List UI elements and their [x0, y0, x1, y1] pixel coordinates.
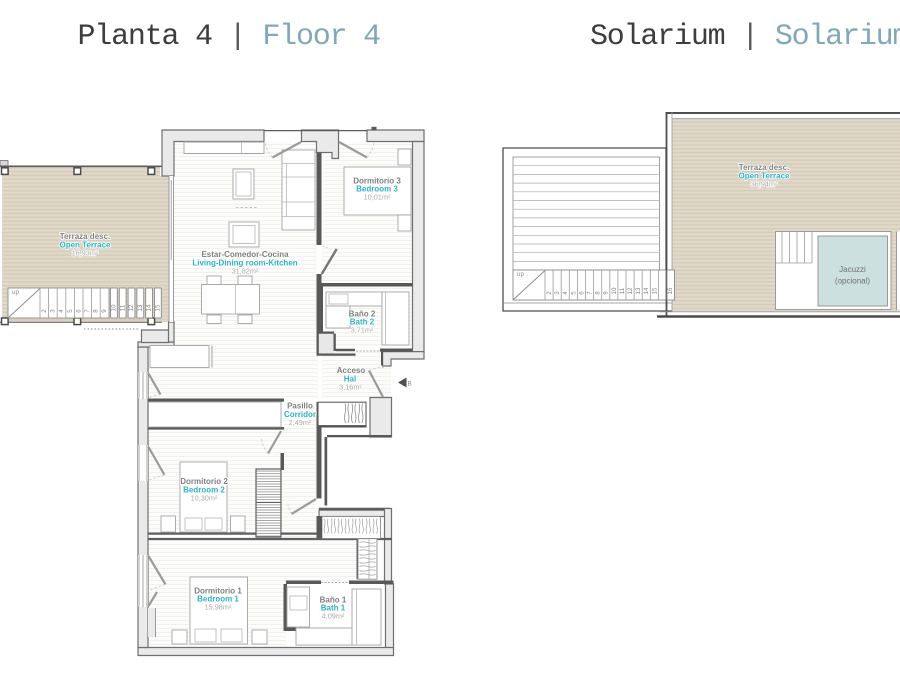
svg-text:(opcional): (opcional): [835, 277, 870, 286]
svg-text:31,82m²: 31,82m²: [232, 267, 259, 276]
svg-text:11: 11: [619, 287, 626, 294]
svg-text:3: 3: [554, 291, 561, 295]
svg-text:5: 5: [570, 291, 577, 295]
svg-text:Jacuzzi: Jacuzzi: [839, 265, 866, 274]
svg-text:7: 7: [84, 309, 91, 313]
svg-text:12: 12: [128, 304, 135, 311]
svg-text:10: 10: [111, 304, 118, 311]
svg-text:16,93m²: 16,93m²: [72, 249, 99, 258]
svg-text:14: 14: [643, 287, 650, 294]
svg-text:3,71m²: 3,71m²: [351, 326, 374, 335]
svg-text:15: 15: [651, 287, 658, 294]
svg-text:9: 9: [101, 309, 108, 313]
svg-text:3: 3: [50, 309, 57, 313]
svg-text:11: 11: [119, 304, 126, 311]
svg-text:8: 8: [595, 291, 602, 295]
svg-text:36,94m²: 36,94m²: [751, 180, 778, 189]
svg-text:15,98m²: 15,98m²: [205, 603, 232, 612]
svg-text:6: 6: [75, 309, 82, 313]
svg-text:13: 13: [635, 287, 642, 294]
svg-text:4: 4: [562, 291, 569, 295]
svg-text:3,16m²: 3,16m²: [339, 383, 362, 392]
svg-text:up: up: [517, 271, 524, 278]
svg-text:7: 7: [587, 291, 594, 295]
svg-text:Planta 4 | Floor 4: Planta 4 | Floor 4: [78, 20, 381, 54]
svg-text:5: 5: [67, 309, 74, 313]
svg-text:16: 16: [667, 287, 674, 294]
svg-text:13: 13: [137, 304, 144, 311]
svg-text:Solarium | Solarium: Solarium | Solarium: [590, 20, 900, 54]
svg-text:10: 10: [611, 287, 618, 294]
svg-text:2: 2: [546, 291, 553, 295]
svg-text:15: 15: [155, 304, 162, 311]
svg-text:2: 2: [41, 309, 48, 313]
svg-text:8: 8: [93, 309, 100, 313]
svg-text:12: 12: [627, 287, 634, 294]
svg-text:2,49m²: 2,49m²: [289, 418, 312, 427]
svg-text:10,30m²: 10,30m²: [191, 494, 218, 503]
svg-text:14: 14: [146, 304, 153, 311]
svg-text:9: 9: [603, 291, 610, 295]
svg-text:4: 4: [58, 309, 65, 313]
svg-text:up: up: [12, 289, 19, 296]
svg-text:10,01m²: 10,01m²: [364, 193, 391, 202]
svg-text:B: B: [408, 381, 412, 388]
svg-text:4,09m²: 4,09m²: [322, 612, 345, 621]
svg-text:6: 6: [578, 291, 585, 295]
